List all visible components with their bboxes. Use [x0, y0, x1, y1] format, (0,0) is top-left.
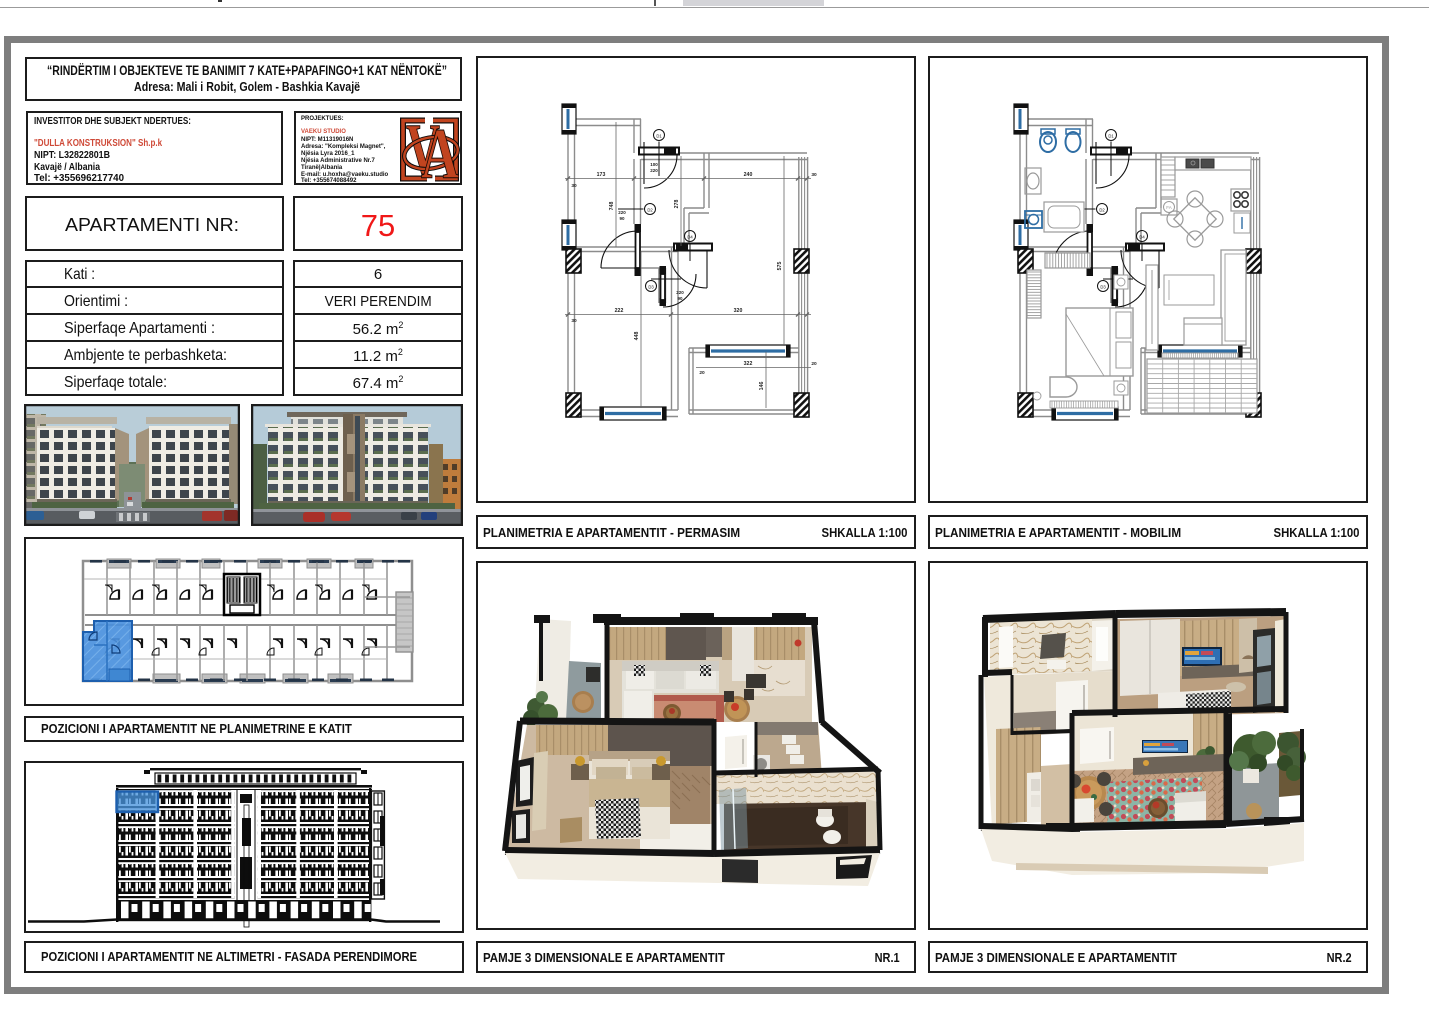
svg-text:D2: D2 — [647, 208, 653, 213]
svg-text:FA: FA — [1166, 205, 1172, 210]
svg-text:D2: D2 — [1099, 208, 1105, 213]
svg-text:A: A — [421, 117, 459, 182]
svg-text:30: 30 — [811, 172, 817, 178]
svg-text:748: 748 — [609, 202, 615, 211]
svg-text:448: 448 — [634, 332, 640, 341]
svg-text:240: 240 — [744, 172, 753, 178]
svg-text:20: 20 — [811, 361, 817, 367]
svg-text:146: 146 — [759, 382, 765, 391]
svg-text:D1: D1 — [1108, 134, 1114, 139]
svg-text:220: 220 — [650, 168, 658, 173]
svg-text:20: 20 — [699, 370, 705, 376]
svg-text:30: 30 — [571, 318, 577, 324]
svg-text:90: 90 — [619, 216, 625, 221]
svg-text:D1: D1 — [656, 134, 662, 139]
svg-text:D3: D3 — [1100, 285, 1106, 290]
svg-text:220: 220 — [618, 210, 626, 215]
svg-text:D4: D4 — [1139, 235, 1145, 240]
svg-text:D3: D3 — [648, 285, 654, 290]
svg-text:100: 100 — [650, 162, 658, 167]
svg-text:220: 220 — [676, 290, 684, 295]
svg-text:90: 90 — [677, 296, 683, 301]
svg-text:322: 322 — [744, 361, 753, 367]
svg-text:278: 278 — [674, 200, 680, 209]
svg-text:320: 320 — [734, 308, 743, 314]
svg-text:222: 222 — [615, 308, 624, 314]
svg-text:30: 30 — [571, 183, 577, 189]
svg-text:575: 575 — [777, 262, 783, 271]
svg-text:D4: D4 — [687, 235, 693, 240]
svg-text:173: 173 — [597, 172, 606, 178]
